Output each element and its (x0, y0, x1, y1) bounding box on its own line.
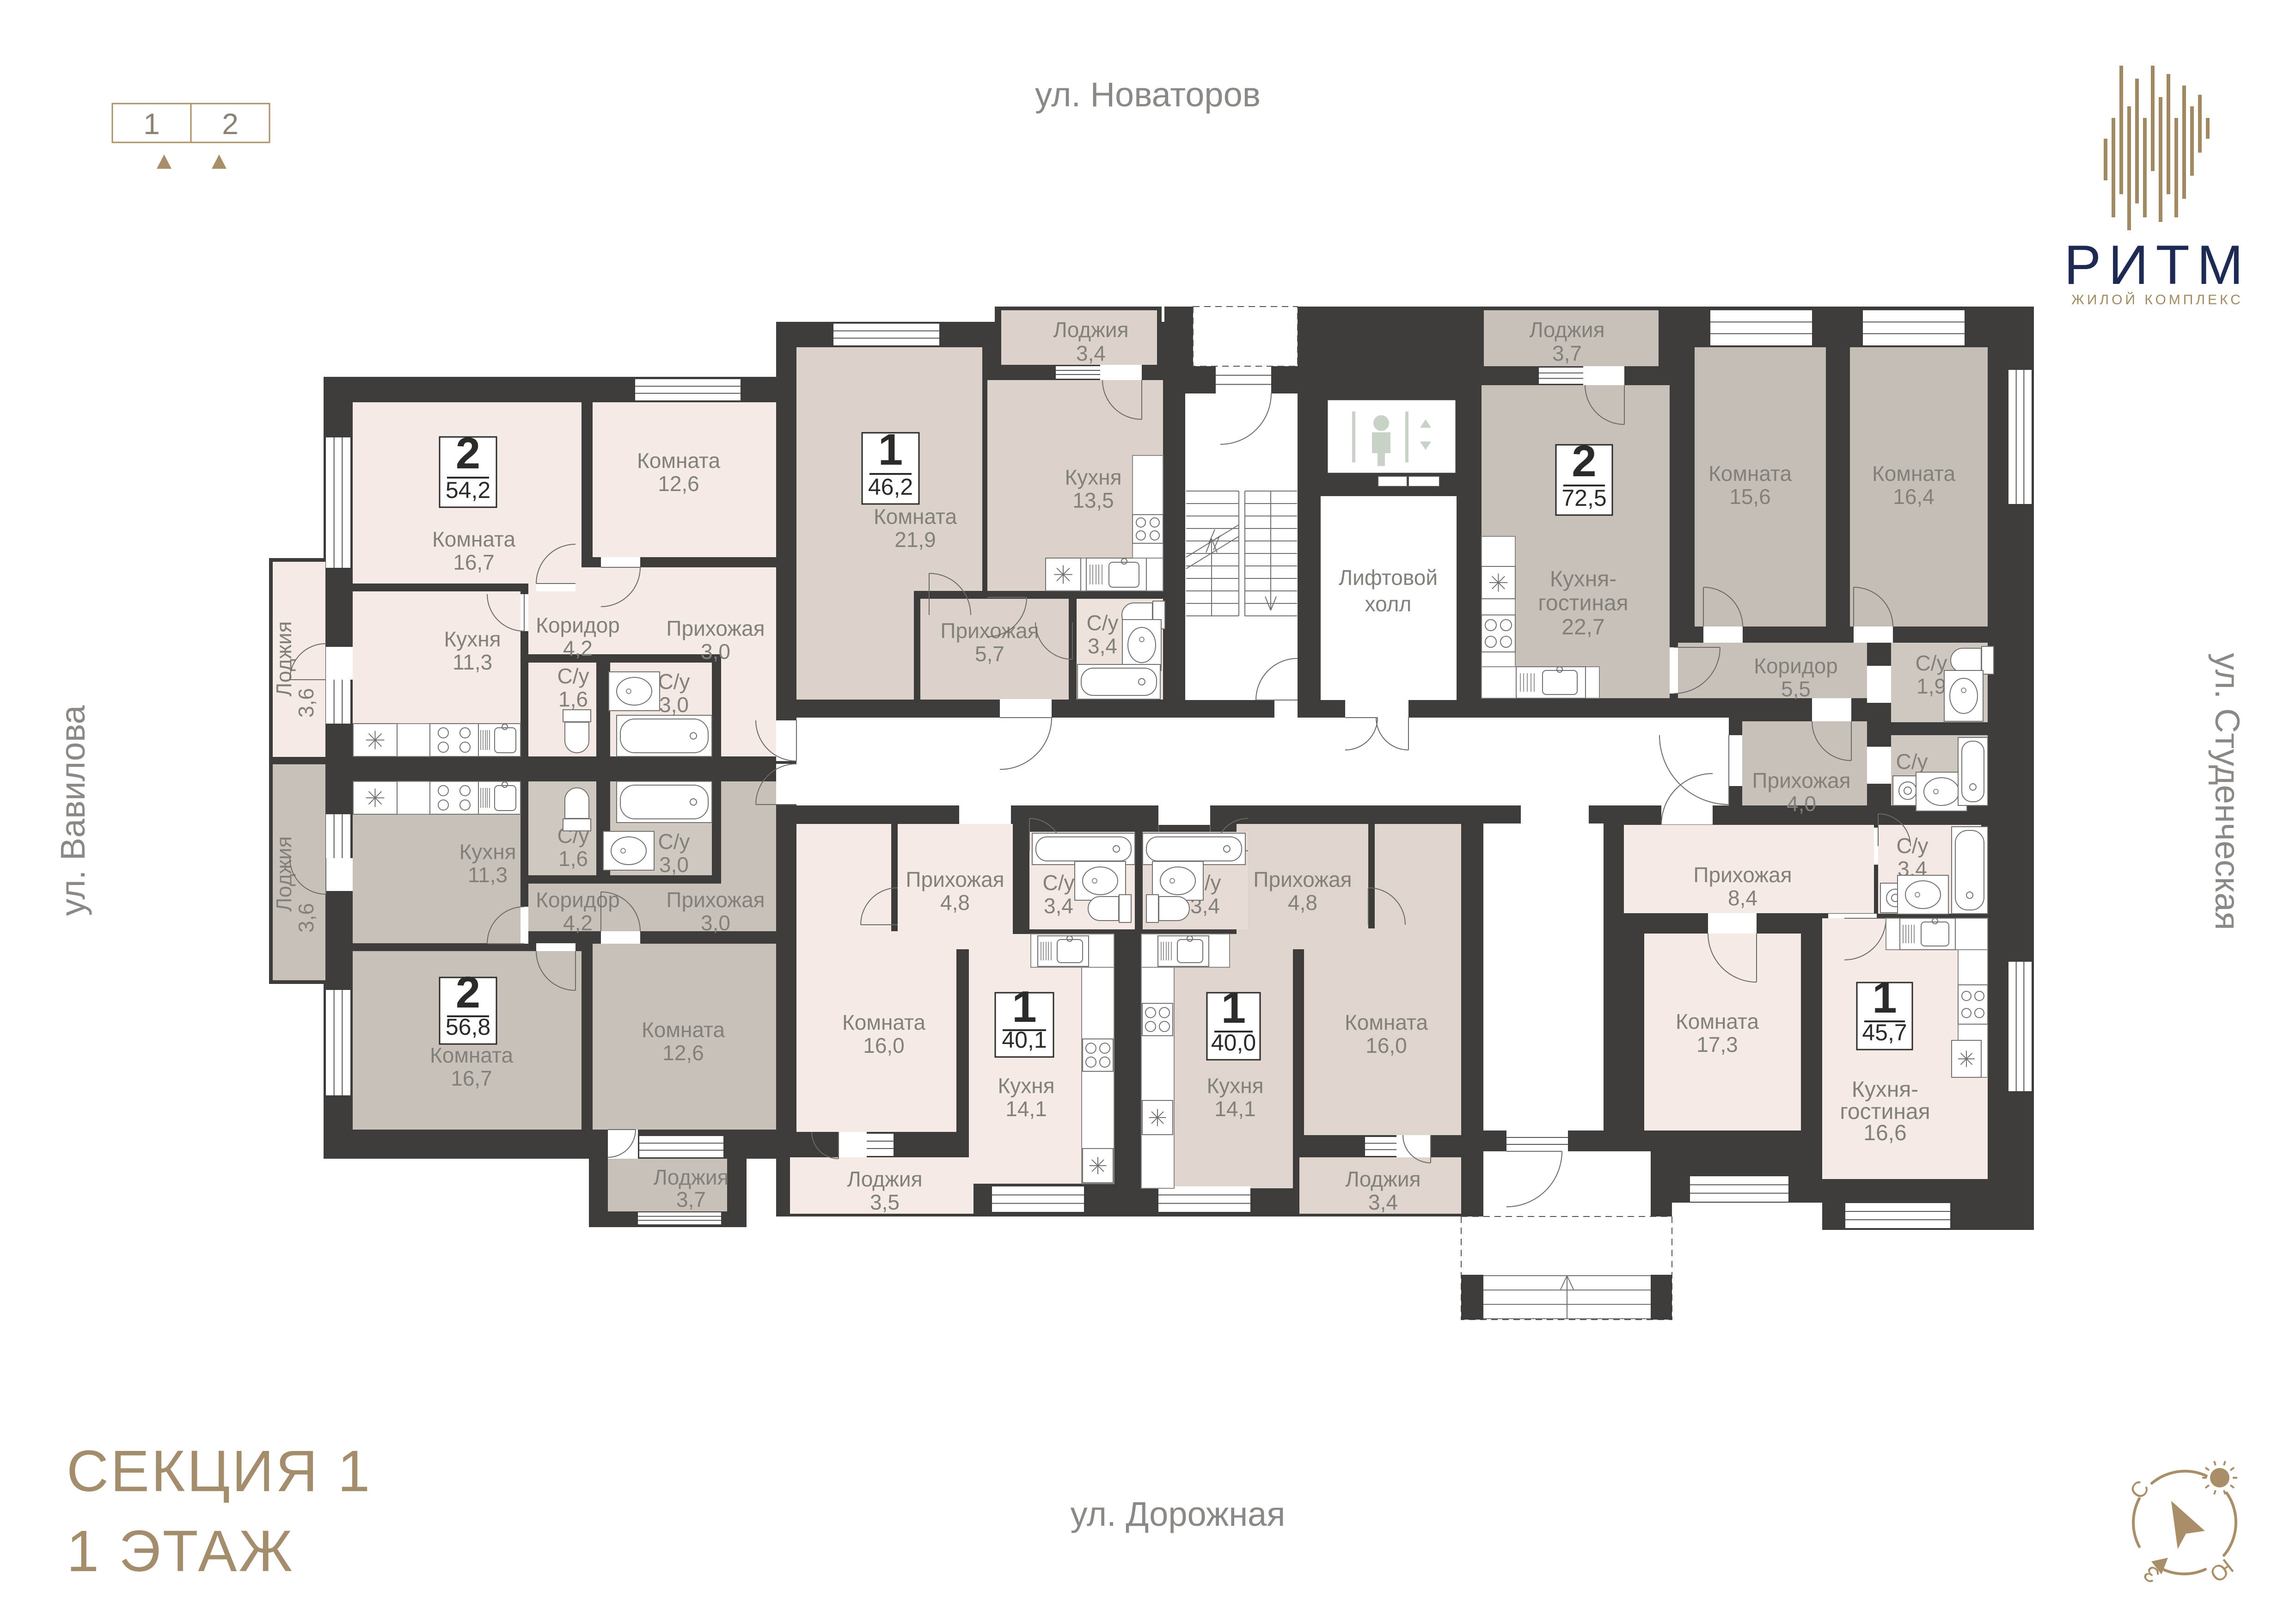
svg-text:5,7: 5,7 (975, 642, 1004, 666)
svg-text:40,1: 40,1 (1002, 1027, 1047, 1053)
svg-text:4,2: 4,2 (563, 911, 593, 935)
svg-text:Прихожая: Прихожая (1752, 768, 1850, 793)
svg-text:3,4: 3,4 (1368, 1190, 1398, 1214)
svg-text:Коридор: Коридор (536, 888, 620, 912)
svg-text:3,0: 3,0 (659, 693, 689, 717)
svg-text:3,6: 3,6 (294, 903, 318, 933)
svg-text:16,0: 16,0 (863, 1033, 905, 1057)
svg-text:Прихожая: Прихожая (1693, 863, 1792, 887)
svg-text:1: 1 (1012, 982, 1036, 1032)
svg-text:ул. Дорожная: ул. Дорожная (1071, 1495, 1286, 1533)
svg-text:РИТМ: РИТМ (2064, 234, 2251, 296)
svg-text:С/у: С/у (658, 670, 690, 694)
svg-text:СЕКЦИЯ 1: СЕКЦИЯ 1 (67, 1438, 372, 1504)
svg-text:Прихожая: Прихожая (666, 616, 765, 640)
svg-text:16,0: 16,0 (1365, 1033, 1407, 1057)
svg-text:Кухня: Кухня (444, 627, 501, 651)
svg-text:16,6: 16,6 (1863, 1121, 1906, 1145)
svg-text:Кухня: Кухня (998, 1074, 1054, 1098)
svg-text:ул. Студенческая: ул. Студенческая (2208, 653, 2247, 930)
svg-text:Коридор: Коридор (536, 613, 620, 637)
svg-text:2: 2 (456, 968, 480, 1017)
svg-text:16,7: 16,7 (451, 1066, 492, 1090)
svg-text:С/у: С/у (658, 829, 690, 854)
svg-text:45,7: 45,7 (1862, 1020, 1907, 1045)
svg-text:Комната: Комната (1872, 461, 1956, 485)
svg-text:4,2: 4,2 (563, 636, 593, 660)
svg-text:1,9: 1,9 (1916, 674, 1946, 698)
svg-text:Лоджия: Лоджия (1053, 318, 1129, 342)
svg-text:1: 1 (143, 107, 160, 141)
svg-text:1: 1 (1221, 983, 1246, 1032)
svg-text:1 ЭТАЖ: 1 ЭТАЖ (67, 1518, 294, 1584)
svg-text:холл: холл (1365, 592, 1412, 616)
svg-text:С/у: С/у (1087, 611, 1119, 635)
svg-text:3,4: 3,4 (1088, 634, 1117, 658)
svg-text:Комната: Комната (432, 527, 516, 551)
svg-text:Комната: Комната (642, 1018, 725, 1042)
svg-text:13,5: 13,5 (1072, 488, 1114, 512)
svg-text:Комната: Комната (874, 504, 957, 528)
svg-text:С/у: С/у (1043, 871, 1075, 895)
svg-text:8,4: 8,4 (1728, 886, 1757, 910)
svg-text:17,3: 17,3 (1696, 1032, 1738, 1057)
svg-text:Комната: Комната (1345, 1010, 1428, 1034)
svg-text:Кухня: Кухня (459, 840, 516, 864)
svg-text:Лоджия: Лоджия (1530, 318, 1605, 342)
svg-text:2: 2 (1572, 436, 1596, 486)
svg-text:3,7: 3,7 (676, 1187, 706, 1211)
svg-text:Лифтовой: Лифтовой (1339, 565, 1438, 590)
svg-text:12,6: 12,6 (658, 472, 699, 496)
svg-text:Комната: Комната (637, 449, 721, 473)
svg-text:14,1: 14,1 (1005, 1097, 1047, 1121)
svg-text:Лоджия: Лоджия (272, 836, 296, 912)
svg-text:Кухня: Кухня (1206, 1074, 1263, 1098)
svg-text:16,7: 16,7 (453, 550, 495, 574)
svg-text:4,0: 4,0 (1787, 792, 1816, 816)
svg-text:Лоджия: Лоджия (1346, 1167, 1421, 1191)
svg-text:1,6: 1,6 (558, 687, 588, 711)
svg-text:3,0: 3,0 (659, 853, 689, 877)
svg-text:2: 2 (456, 429, 480, 478)
svg-text:3,4: 3,4 (1076, 341, 1106, 365)
svg-text:Комната: Комната (1708, 461, 1792, 485)
svg-text:72,5: 72,5 (1561, 485, 1606, 511)
svg-text:3,7: 3,7 (1552, 341, 1582, 365)
svg-text:Лоджия: Лоджия (272, 621, 296, 697)
svg-text:С/у: С/у (1896, 750, 1928, 774)
svg-text:С/у: С/у (1916, 651, 1947, 675)
svg-text:С/у: С/у (1897, 834, 1929, 858)
svg-text:22,7: 22,7 (1561, 615, 1604, 639)
svg-text:Лоджия: Лоджия (847, 1167, 923, 1191)
svg-text:12,6: 12,6 (662, 1041, 704, 1065)
svg-text:Комната: Комната (842, 1010, 926, 1034)
svg-text:3,6: 3,6 (294, 688, 318, 718)
svg-text:14,1: 14,1 (1214, 1097, 1256, 1121)
svg-text:4,8: 4,8 (1288, 891, 1317, 915)
svg-text:Комната: Комната (430, 1043, 514, 1067)
svg-text:2: 2 (222, 107, 239, 141)
svg-text:Кухня-: Кухня- (1852, 1077, 1918, 1102)
svg-text:Лоджия: Лоджия (654, 1165, 729, 1189)
svg-text:11,3: 11,3 (453, 650, 492, 674)
svg-text:3,0: 3,0 (701, 911, 730, 935)
svg-text:ЖИЛОЙ КОМПЛЕКС: ЖИЛОЙ КОМПЛЕКС (2071, 292, 2243, 307)
svg-text:3,4: 3,4 (1044, 894, 1073, 918)
svg-text:46,2: 46,2 (868, 474, 913, 500)
svg-text:1: 1 (1872, 973, 1897, 1022)
svg-text:1,6: 1,6 (558, 847, 588, 871)
svg-text:Прихожая: Прихожая (666, 888, 765, 912)
svg-text:Кухня-: Кухня- (1550, 567, 1616, 591)
svg-text:11,3: 11,3 (468, 863, 508, 887)
svg-text:56,8: 56,8 (446, 1014, 490, 1040)
svg-text:гостиная: гостиная (1538, 591, 1628, 615)
svg-text:Прихожая: Прихожая (1253, 867, 1352, 891)
svg-text:Коридор: Коридор (1754, 654, 1838, 678)
svg-text:Комната: Комната (1676, 1009, 1759, 1033)
svg-text:С/у: С/у (557, 664, 589, 688)
svg-text:16,4: 16,4 (1893, 485, 1935, 509)
svg-text:54,2: 54,2 (446, 477, 490, 503)
svg-text:15,6: 15,6 (1729, 485, 1771, 509)
svg-text:Прихожая: Прихожая (906, 867, 1004, 891)
svg-text:ул. Новаторов: ул. Новаторов (1035, 75, 1261, 114)
svg-text:ул. Вавилова: ул. Вавилова (54, 705, 92, 915)
svg-text:Кухня: Кухня (1065, 465, 1121, 489)
svg-text:4,8: 4,8 (940, 891, 970, 915)
svg-text:3,5: 3,5 (870, 1190, 900, 1214)
svg-text:40,0: 40,0 (1211, 1030, 1256, 1056)
svg-text:21,9: 21,9 (894, 528, 936, 552)
svg-text:Прихожая: Прихожая (940, 619, 1039, 643)
svg-text:1: 1 (878, 425, 903, 474)
svg-text:5,5: 5,5 (1781, 677, 1811, 701)
svg-text:3,0: 3,0 (701, 639, 730, 664)
